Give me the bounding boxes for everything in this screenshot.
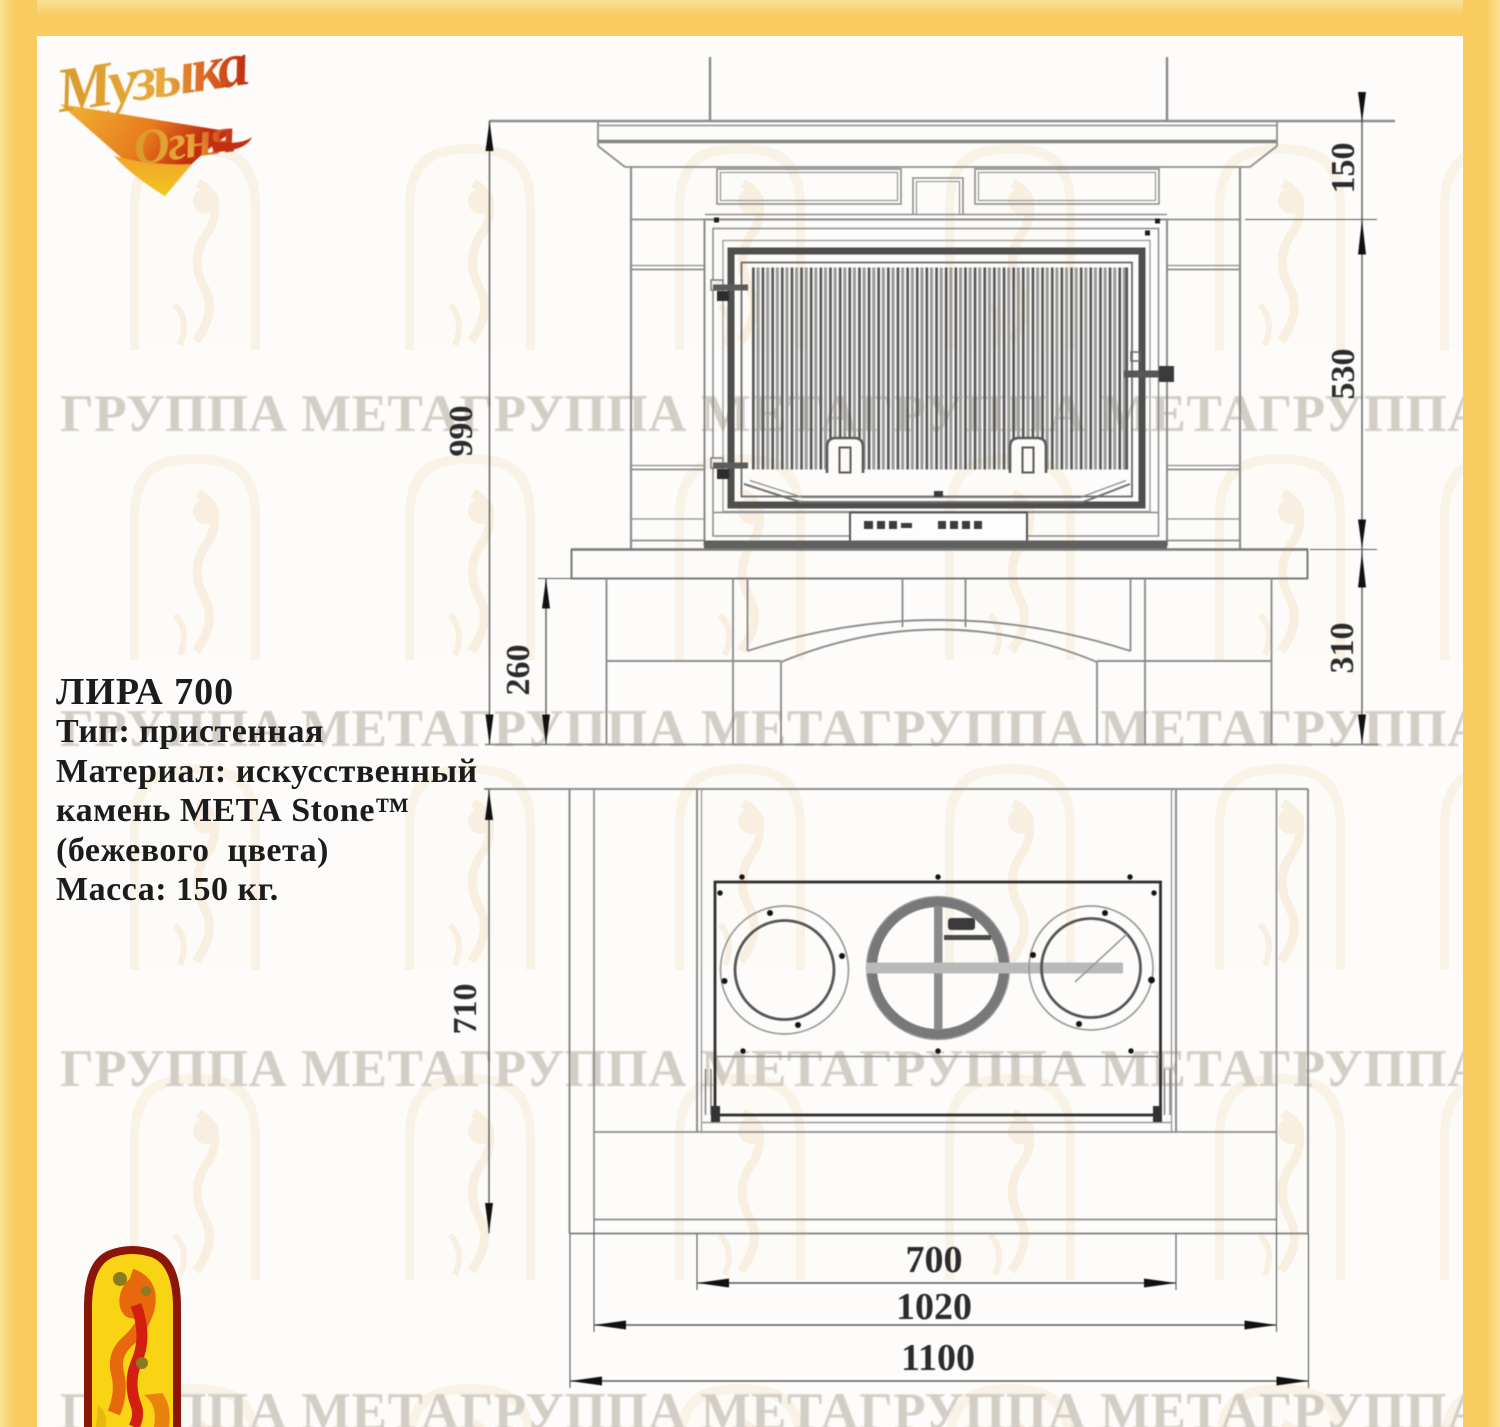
svg-text:310: 310 [1324,623,1361,674]
svg-text:530: 530 [1325,349,1362,400]
svg-text:710: 710 [447,984,484,1035]
svg-text:1100: 1100 [901,1337,975,1379]
svg-text:Огня: Огня [130,106,238,176]
svg-text:150: 150 [1325,143,1362,194]
svg-text:700: 700 [906,1239,963,1281]
svg-text:260: 260 [500,645,537,696]
svg-text:990: 990 [443,406,480,457]
svg-text:1020: 1020 [896,1286,972,1328]
